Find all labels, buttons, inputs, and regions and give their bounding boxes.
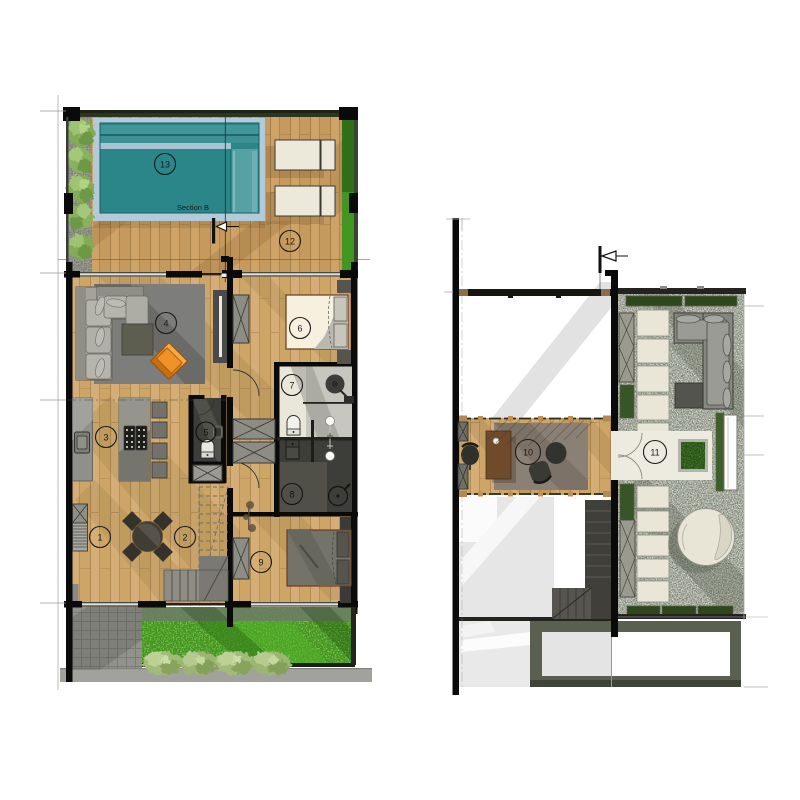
svg-text:3: 3 xyxy=(103,433,108,443)
svg-text:13: 13 xyxy=(160,160,170,170)
svg-text:5: 5 xyxy=(203,428,208,438)
svg-text:9: 9 xyxy=(258,558,263,568)
svg-text:1: 1 xyxy=(97,533,102,543)
svg-text:2: 2 xyxy=(182,533,187,543)
svg-text:6: 6 xyxy=(297,324,302,334)
svg-text:4: 4 xyxy=(163,319,168,329)
svg-text:Section B: Section B xyxy=(177,203,209,212)
svg-text:11: 11 xyxy=(650,448,659,458)
svg-text:12: 12 xyxy=(285,237,295,247)
svg-text:10: 10 xyxy=(523,448,533,458)
svg-text:7: 7 xyxy=(289,381,294,391)
svg-text:8: 8 xyxy=(289,490,294,500)
